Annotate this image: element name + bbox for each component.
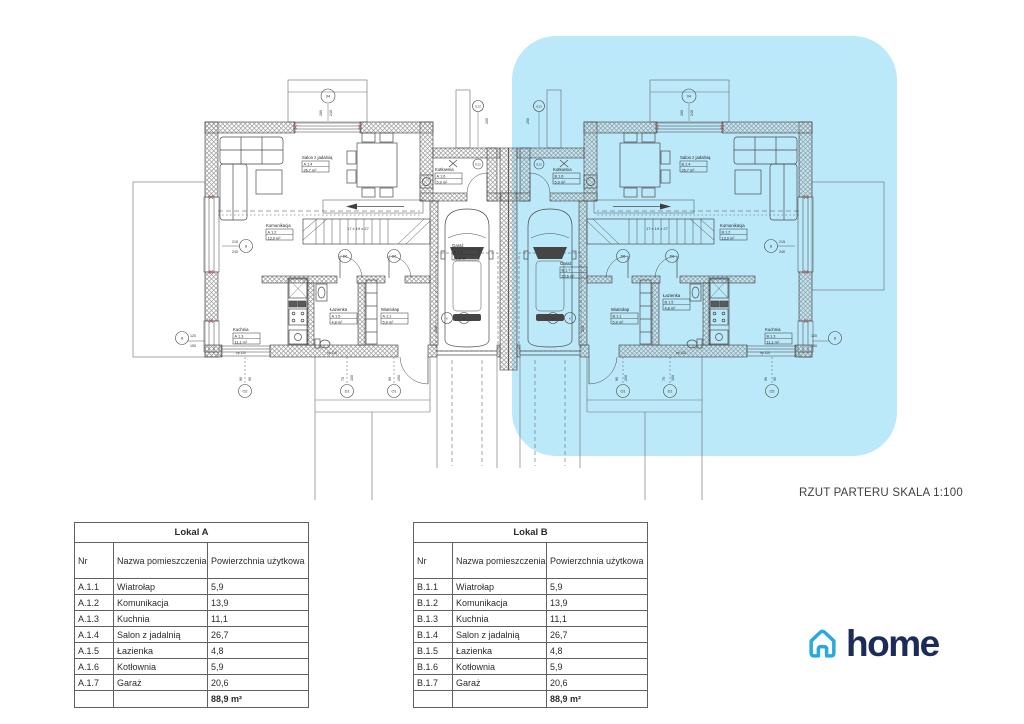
col-header-name: Nazwa pomieszczenia xyxy=(453,543,547,579)
svg-text:Wiatrołap: Wiatrołap xyxy=(611,307,630,312)
svg-text:13,9 m²: 13,9 m² xyxy=(268,236,282,240)
svg-text:D1: D1 xyxy=(345,389,350,393)
dimension-text: 200 xyxy=(624,375,628,381)
svg-text:A.1.5: A.1.5 xyxy=(332,315,341,319)
dimension-text: 17 x 19 x 27 xyxy=(347,226,370,231)
reference-marker: E13 xyxy=(473,101,484,112)
svg-text:11,1 m²: 11,1 m² xyxy=(235,340,248,344)
table-row: A.1.3Kuchnia11,1 xyxy=(75,611,309,627)
dimension-text: 260 xyxy=(319,110,323,116)
dimension-text: 240 xyxy=(779,250,785,254)
table-row: B.1.2Komunikacja13,9 xyxy=(414,595,648,611)
svg-text:D1: D1 xyxy=(668,389,673,393)
svg-text:Komunikacja: Komunikacja xyxy=(266,223,291,228)
table-row: A.1.7Garaż20,6 xyxy=(75,675,309,691)
table-row: B.1.6Kotłownia5,9 xyxy=(414,659,648,675)
dimension-text: 90 xyxy=(615,377,619,381)
col-header-area: Powierzchnia użytkowa xyxy=(547,543,648,579)
dimension-text: 90 xyxy=(248,377,252,381)
svg-text:Łazienka: Łazienka xyxy=(663,293,681,298)
svg-text:5,9 m²: 5,9 m² xyxy=(555,180,566,184)
svg-text:Komunikacja: Komunikacja xyxy=(720,223,745,228)
table-row: B.1.5Łazienka4,8 xyxy=(414,643,648,659)
room-label: KomunikacjaA.1.213,9 m² xyxy=(266,223,293,240)
table-lokal-a: Lokal A Nr Nazwa pomieszczenia Powierzch… xyxy=(74,522,309,708)
col-header-nr: Nr xyxy=(75,543,114,579)
dimension-text: hp 110 xyxy=(760,351,770,355)
svg-text:B.1.4: B.1.4 xyxy=(682,163,691,167)
svg-text:Wiatrołap: Wiatrołap xyxy=(381,307,400,312)
svg-text:Salon z jadalnią: Salon z jadalnią xyxy=(302,155,333,160)
dimension-text: 90 xyxy=(388,377,392,381)
table-row: B.1.7Garaż20,6 xyxy=(414,675,648,691)
floor-plan-page: Salon z jadalniąA.1.426,7 m²KotłowniaA.1… xyxy=(0,0,1024,724)
svg-text:B.1.3: B.1.3 xyxy=(767,335,776,339)
svg-text:B.1.2: B.1.2 xyxy=(722,231,731,235)
dimension-text: hp 110 xyxy=(327,351,337,355)
svg-text:20,6 m²: 20,6 m² xyxy=(454,256,468,260)
svg-text:B.1.1: B.1.1 xyxy=(613,315,622,319)
dimension-text: 200 xyxy=(397,375,401,381)
unit-b-highlight xyxy=(512,36,897,456)
table-lokal-b: Lokal B Nr Nazwa pomieszczenia Powierzch… xyxy=(413,522,648,708)
svg-text:E13: E13 xyxy=(536,162,542,166)
svg-text:4,8 m²: 4,8 m² xyxy=(665,306,676,310)
svg-text:O2: O2 xyxy=(242,389,247,393)
table-row: A.1.4Salon z jadalnią26,7 xyxy=(75,627,309,643)
svg-text:O2: O2 xyxy=(769,389,774,393)
dimension-text: 215 xyxy=(779,240,785,244)
svg-text:D6: D6 xyxy=(621,254,626,258)
svg-text:D6: D6 xyxy=(670,254,675,258)
total-area: 88,9 m² xyxy=(547,691,648,708)
svg-text:DG: DG xyxy=(462,316,467,320)
dimension-text: 200 xyxy=(485,118,489,124)
svg-text:A.1.4: A.1.4 xyxy=(304,163,313,167)
svg-text:B.1.5: B.1.5 xyxy=(665,301,674,305)
svg-text:E13: E13 xyxy=(536,104,542,108)
terrace-left xyxy=(133,182,205,357)
svg-text:A.1.2: A.1.2 xyxy=(268,231,277,235)
col-header-name: Nazwa pomieszczenia xyxy=(114,543,208,579)
table-row: B.1.3Kuchnia11,1 xyxy=(414,611,648,627)
room-label: WiatrołapA.1.15,9 m² xyxy=(381,307,408,324)
svg-text:04: 04 xyxy=(326,94,330,98)
svg-text:13,9 m²: 13,9 m² xyxy=(722,236,736,240)
dimension-text: 215 xyxy=(232,240,238,244)
table-row: A.1.1Wiatrołap5,9 xyxy=(75,579,309,595)
svg-text:A.1.1: A.1.1 xyxy=(383,315,392,319)
unit-a-geometry xyxy=(188,80,516,500)
dimension-text: 100 xyxy=(350,375,354,381)
svg-text:A.1.7: A.1.7 xyxy=(454,251,463,255)
dimension-text: 240 xyxy=(232,250,238,254)
total-area: 88,9 m² xyxy=(208,691,309,708)
table-row: A.1.2Komunikacja13,9 xyxy=(75,595,309,611)
svg-text:Salon z jadalnią: Salon z jadalnią xyxy=(680,155,711,160)
svg-text:Garaż: Garaż xyxy=(452,243,464,248)
svg-text:04: 04 xyxy=(687,94,691,98)
dimension-text: 200 xyxy=(581,326,585,332)
svg-text:O1: O1 xyxy=(620,389,625,393)
dimension-text: 240 xyxy=(690,110,694,116)
svg-text:4,8 m²: 4,8 m² xyxy=(332,320,343,324)
svg-text:20,6 m²: 20,6 m² xyxy=(562,274,576,278)
dimension-text: 120 xyxy=(811,334,817,338)
dimension-text: 90 xyxy=(764,377,768,381)
svg-text:Kotłownia: Kotłownia xyxy=(435,167,454,172)
logo-wordmark: home xyxy=(846,627,939,660)
table-row: A.1.6Kotłownia5,9 xyxy=(75,659,309,675)
svg-text:26,7 m²: 26,7 m² xyxy=(682,168,696,172)
svg-text:D6: D6 xyxy=(343,254,348,258)
table-row: B.1.1Wiatrołap5,9 xyxy=(414,579,648,595)
dimension-text: 90 xyxy=(239,377,243,381)
svg-text:5,9 m²: 5,9 m² xyxy=(383,320,394,324)
reference-marker: 8 xyxy=(240,240,253,253)
svg-text:K: K xyxy=(446,316,448,320)
reference-marker: K xyxy=(442,313,453,324)
svg-text:A.1.3: A.1.3 xyxy=(235,335,244,339)
dimension-text: 100 xyxy=(671,375,675,381)
svg-text:K: K xyxy=(569,316,571,320)
reference-marker: 8 xyxy=(176,332,189,345)
svg-text:8: 8 xyxy=(181,336,183,340)
svg-text:Kuchnia: Kuchnia xyxy=(233,327,249,332)
col-header-area: Powierzchnia użytkowa xyxy=(208,543,309,579)
reference-marker: O1 xyxy=(388,385,401,398)
svg-text:A.1.6: A.1.6 xyxy=(437,175,446,179)
reference-marker: O2 xyxy=(239,385,252,398)
house-icon xyxy=(806,627,839,660)
svg-text:B.1.7: B.1.7 xyxy=(562,269,571,273)
table-title: Lokal A xyxy=(75,523,309,543)
dimension-text: 70 xyxy=(662,377,666,381)
dimension-text: 260 xyxy=(680,110,684,116)
table-title: Lokal B xyxy=(414,523,648,543)
svg-text:Garaż: Garaż xyxy=(560,261,572,266)
svg-text:E13: E13 xyxy=(475,162,481,166)
svg-text:Łazienka: Łazienka xyxy=(330,307,348,312)
svg-text:8: 8 xyxy=(834,336,836,340)
reference-marker: E13 xyxy=(473,159,483,169)
dimension-text: 120 xyxy=(190,334,196,338)
svg-text:8: 8 xyxy=(770,244,772,248)
svg-text:Kuchnia: Kuchnia xyxy=(765,327,781,332)
reference-marker: D1 xyxy=(341,385,354,398)
dimension-text: 90 xyxy=(773,377,777,381)
dimension-text: 70 xyxy=(341,377,345,381)
svg-text:DG: DG xyxy=(551,316,556,320)
svg-text:E13: E13 xyxy=(475,104,481,108)
table-row: A.1.5Łazienka4,8 xyxy=(75,643,309,659)
svg-text:5,9 m²: 5,9 m² xyxy=(613,320,624,324)
svg-text:11,1 m²: 11,1 m² xyxy=(767,340,780,344)
dimension-text: 150 xyxy=(811,344,817,348)
svg-text:D6: D6 xyxy=(392,254,397,258)
svg-text:26,7 m²: 26,7 m² xyxy=(304,168,318,172)
room-label: KotłowniaA.1.65,9 m² xyxy=(435,167,462,184)
svg-text:5,9 m²: 5,9 m² xyxy=(437,180,448,184)
svg-text:Kotłownia: Kotłownia xyxy=(553,167,572,172)
svg-text:B.1.6: B.1.6 xyxy=(555,175,564,179)
dimension-text: 200 xyxy=(434,326,438,332)
svg-text:O1: O1 xyxy=(391,389,396,393)
svg-text:8: 8 xyxy=(245,244,247,248)
reference-marker: 04 xyxy=(321,89,335,103)
room-label: ŁazienkaA.1.54,8 m² xyxy=(330,307,357,324)
col-header-nr: Nr xyxy=(414,543,453,579)
table-row: B.1.4Salon z jadalnią26,7 xyxy=(414,627,648,643)
dimension-text: 200 xyxy=(526,118,530,124)
room-label: KuchniaA.1.311,1 m² xyxy=(233,327,260,344)
dimension-text: 17 x 19 x 27 xyxy=(646,226,669,231)
dimension-text: hp 110 xyxy=(676,351,686,355)
dimension-text: 150 xyxy=(190,344,196,348)
home-logo: home xyxy=(806,627,939,660)
dimension-text: hp 110 xyxy=(236,351,246,355)
dimension-text: 240 xyxy=(329,110,333,116)
scale-caption: RZUT PARTERU SKALA 1:100 xyxy=(799,487,963,499)
room-label: Salon z jadalniąA.1.426,7 m² xyxy=(302,155,333,172)
